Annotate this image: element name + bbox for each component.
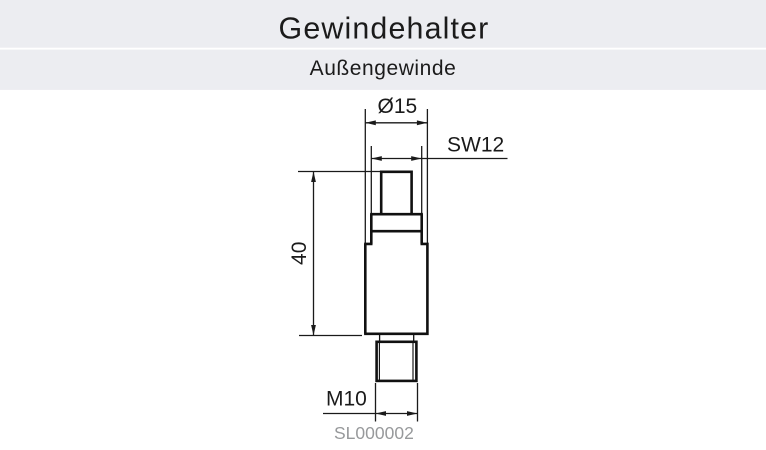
svg-text:Gewindehalter: Gewindehalter: [279, 12, 490, 46]
svg-text:SW12: SW12: [447, 134, 504, 157]
svg-text:40: 40: [288, 242, 311, 265]
svg-text:SL000002: SL000002: [334, 423, 414, 443]
svg-text:Ø15: Ø15: [378, 95, 418, 118]
svg-text:Außengewinde: Außengewinde: [310, 57, 457, 80]
svg-text:M10: M10: [326, 388, 367, 411]
